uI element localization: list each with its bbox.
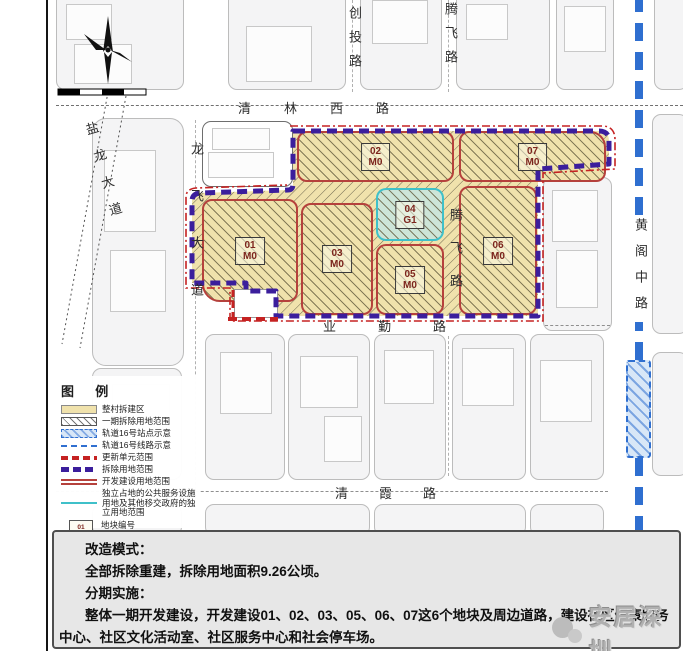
swatch-metro-station <box>61 429 97 438</box>
road-label-huangge-middle: 黄阁中路 <box>631 218 650 322</box>
road-label-tengfei-north: 腾飞路 <box>441 2 460 74</box>
road-label-qingxia: 清霞路 <box>335 483 467 502</box>
legend-item: 更新单元范围 <box>61 453 196 463</box>
legend-item: 一期拆除用地范围 <box>61 417 196 427</box>
note-mode-heading: 改造模式： <box>59 539 675 561</box>
anju-shenzhen-logo-icon <box>552 614 586 650</box>
watermark-text: 安居深圳 <box>589 598 683 651</box>
legend-title: 图 例 <box>61 381 196 400</box>
note-mode-body: 全部拆除重建，拆除用地面积9.26公顷。 <box>59 561 675 583</box>
road-label-chuangtou: 创投路 <box>345 6 364 78</box>
compass-north-arrow <box>84 16 132 84</box>
legend-item: 独立占地的公共服务设施用地及其他移交政府的独立用地范围 <box>61 489 196 518</box>
legend: 图 例 整村拆建区 一期拆除用地范围 轨道16号站点示意 轨道16号线路示意 更… <box>55 376 199 528</box>
swatch-phase1-demolition <box>61 417 97 426</box>
legend-item: 轨道16号线路示意 <box>61 441 196 451</box>
swatch-demolition-boundary <box>61 467 97 472</box>
title-sidebar <box>0 0 46 651</box>
scale-bar <box>58 89 146 95</box>
planning-map-page: 02M0 07M0 01M0 03M0 04G1 05M0 06M0 <box>0 0 683 651</box>
road-label-qinglin-west: 清林西路 <box>238 98 422 117</box>
swatch-rebuild-area <box>61 405 97 414</box>
swatch-metro-line <box>61 445 97 447</box>
road-label-yeqin: 业勤路 <box>323 316 488 335</box>
swatch-public-facility-land <box>61 502 97 504</box>
legend-item: 轨道16号站点示意 <box>61 429 196 439</box>
legend-item: 整村拆建区 <box>61 405 196 415</box>
sidebar-divider <box>46 0 48 651</box>
swatch-development-land <box>61 479 97 485</box>
road-label-tengfei-mid: 腾飞路 <box>446 208 465 307</box>
swatch-unit-boundary <box>61 456 97 460</box>
watermark: 安居深圳 <box>552 598 683 651</box>
road-label-longfei: 龙飞大道 <box>187 142 206 330</box>
legend-item: 拆除用地范围 <box>61 465 196 475</box>
legend-item: 开发建设用地范围 <box>61 477 196 487</box>
